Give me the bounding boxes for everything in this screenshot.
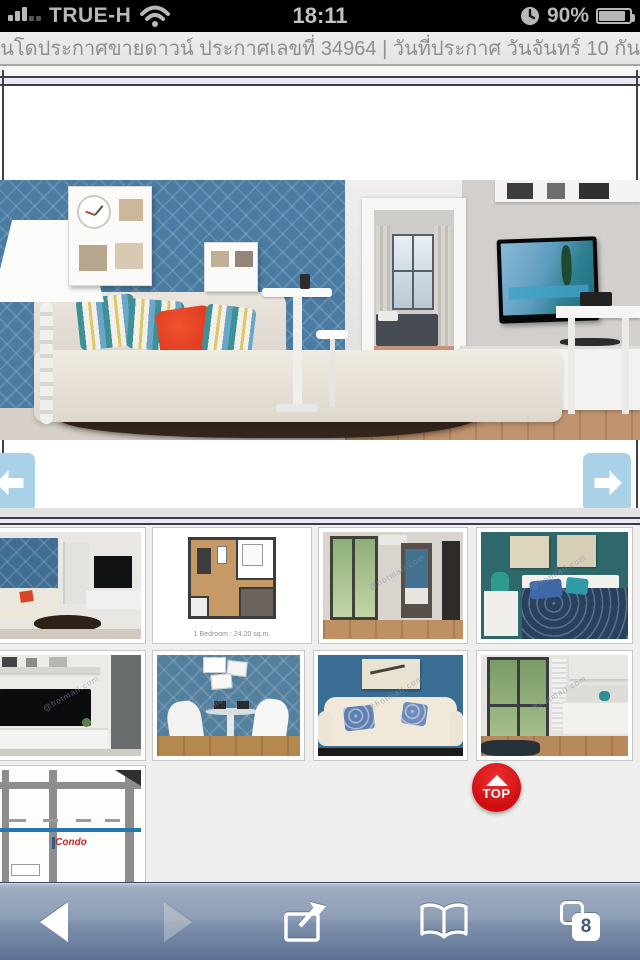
map-condo-marker: Condo bbox=[55, 837, 87, 848]
thumbnail-sofa[interactable]: @hotmail.com bbox=[313, 650, 468, 761]
thumbnail-floor-plan[interactable]: 1 Bedroom : 24.20 sq.m. bbox=[152, 527, 312, 644]
thumbnail-bedroom[interactable]: @hotmail.com bbox=[476, 527, 633, 644]
back-icon bbox=[38, 901, 72, 943]
thumbnail-location-map[interactable]: Condo bbox=[0, 765, 146, 895]
thumbnail-tv-unit[interactable]: @hotmail.com bbox=[0, 650, 146, 761]
pages-icon: 8 bbox=[558, 901, 602, 943]
tab-count-label: 8 bbox=[581, 916, 592, 938]
dining-table-leg bbox=[622, 318, 629, 414]
back-to-top-button[interactable]: TOP bbox=[472, 763, 521, 812]
forward-button[interactable] bbox=[160, 901, 194, 943]
divider-rule-top bbox=[0, 76, 640, 86]
bookmarks-button[interactable] bbox=[418, 903, 470, 941]
section-gap bbox=[0, 508, 640, 517]
divider-rule-bottom bbox=[0, 517, 640, 525]
floor-lamp-pole bbox=[40, 302, 53, 424]
page-top-strip bbox=[0, 66, 640, 76]
thumbnail-kitchen-balcony[interactable]: @hotmail.com bbox=[476, 650, 633, 761]
bar-table bbox=[262, 288, 332, 297]
dining-table-leg bbox=[568, 318, 575, 414]
battery-percent-label: 90% bbox=[547, 4, 589, 28]
thumbnail-living-room[interactable] bbox=[0, 527, 146, 644]
floorplan-caption: 1 Bedroom : 24.20 sq.m. bbox=[157, 631, 307, 638]
striped-pillow bbox=[201, 303, 256, 357]
back-button[interactable] bbox=[38, 901, 72, 943]
dining-table-item bbox=[580, 292, 612, 306]
bookmarks-icon bbox=[418, 903, 470, 941]
main-photo[interactable] bbox=[0, 180, 640, 440]
iphone-screen: TRUE-H 18:11 90% อนโดประกาศขายดาวน์ ประก… bbox=[0, 0, 640, 960]
share-button[interactable] bbox=[282, 900, 330, 944]
arrow-left-icon bbox=[0, 468, 26, 498]
stool bbox=[316, 330, 348, 339]
next-photo-button[interactable] bbox=[583, 453, 631, 512]
pages-button[interactable]: 8 bbox=[558, 901, 602, 943]
wall-frame-small bbox=[204, 242, 258, 292]
alarm-clock-icon bbox=[520, 6, 540, 26]
page-title: อนโดประกาศขายดาวน์ ประกาศเลขที่ 34964 | … bbox=[0, 32, 640, 64]
wall-clock bbox=[77, 195, 111, 229]
battery-icon bbox=[596, 8, 632, 24]
top-button-label: TOP bbox=[483, 787, 511, 800]
status-right-group: 90% bbox=[520, 0, 632, 32]
thumbnail-balcony-room[interactable]: @hotmail.com bbox=[318, 527, 468, 644]
browser-toolbar: 8 bbox=[0, 882, 640, 960]
arrow-right-icon bbox=[592, 468, 622, 498]
prev-photo-button[interactable] bbox=[0, 453, 35, 512]
bedroom-window bbox=[392, 234, 434, 310]
status-bar: TRUE-H 18:11 90% bbox=[0, 0, 640, 32]
bar-table-pole bbox=[293, 297, 302, 407]
stool-leg bbox=[330, 339, 335, 407]
bar-table-vase bbox=[300, 274, 310, 289]
bar-table-base bbox=[276, 404, 318, 412]
dining-table-top bbox=[556, 306, 640, 318]
thumbnail-dining-area[interactable]: @hotmail.com bbox=[152, 650, 305, 761]
page-title-bar: อนโดประกาศขายดาวน์ ประกาศเลขที่ 34964 | … bbox=[0, 32, 640, 66]
share-icon bbox=[282, 900, 330, 944]
wall-shelf bbox=[495, 180, 640, 202]
arrow-up-icon bbox=[486, 775, 508, 786]
forward-icon bbox=[160, 901, 194, 943]
wall-frame-large bbox=[68, 186, 152, 286]
